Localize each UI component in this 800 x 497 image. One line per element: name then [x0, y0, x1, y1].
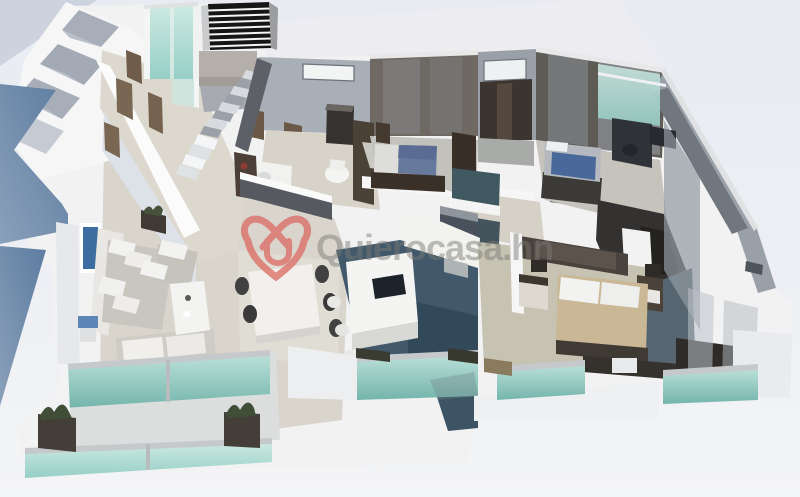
svg-text:Quierocasa.hn: Quierocasa.hn [316, 227, 553, 268]
